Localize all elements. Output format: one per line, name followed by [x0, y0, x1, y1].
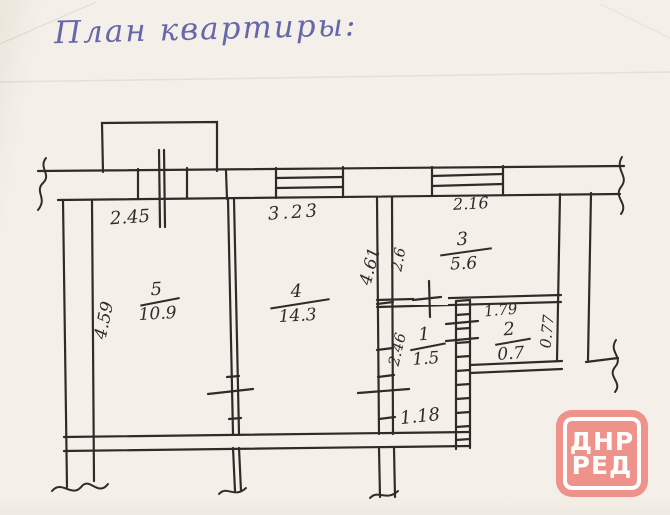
window-room4 [276, 167, 343, 198]
room3-number: 3 [456, 231, 468, 250]
room5-area: 10.9 [138, 305, 177, 324]
wall-lines [38, 122, 624, 498]
window-room3 [432, 166, 503, 196]
room4-number: 4 [290, 283, 302, 302]
bottom-exterior-wall [64, 432, 470, 451]
room1-area: 1.5 [412, 350, 440, 369]
room4-area: 14.3 [278, 307, 317, 326]
room5-label: 5 10.9 [133, 280, 181, 324]
watermark-line1: ДНР [570, 430, 635, 454]
watermark-line2: РЕД [572, 454, 633, 478]
dim-room5-top: 2.45 [109, 208, 150, 229]
scanned-floor-plan-page: План квартиры: [0, 0, 670, 515]
dim-room3-top: 2.16 [453, 195, 489, 213]
room1-label: 1 1.5 [403, 325, 448, 370]
dim-hall-bottom: 1.18 [399, 406, 441, 428]
room4-label: 4 14.3 [263, 281, 331, 326]
dim-room2-right: 0.77 [538, 314, 556, 349]
room1-number: 1 [418, 326, 431, 345]
room2-number: 2 [503, 321, 516, 340]
room2-area: 0.7 [497, 345, 525, 364]
room2-label: 2 0.7 [488, 320, 533, 365]
dim-room3-left: 2.6 [389, 246, 408, 272]
paper-creases [0, 2, 670, 82]
hatched-wall-room1-room2 [446, 300, 478, 449]
watermark-stamp: ДНР РЕД [556, 410, 648, 497]
left-exterior-wall [63, 200, 94, 487]
room3-label: 3 5.6 [433, 230, 493, 275]
dim-room4-top: 3.23 [267, 202, 320, 224]
dim-room2-top: 1.79 [483, 302, 518, 320]
right-exterior-wall [557, 193, 618, 362]
room3-area: 5.6 [450, 255, 478, 273]
room5-number: 5 [150, 281, 162, 300]
partition-room5-room4 [208, 171, 253, 491]
watermark-stamp-frame: ДНР РЕД [563, 417, 641, 490]
